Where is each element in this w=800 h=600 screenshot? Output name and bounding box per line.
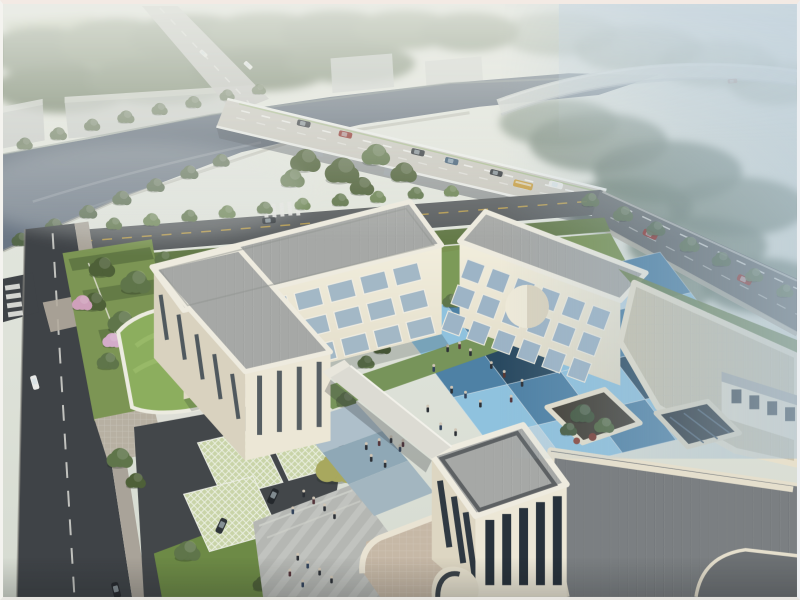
render-scene [3, 4, 797, 597]
architectural-rendering [0, 0, 800, 600]
